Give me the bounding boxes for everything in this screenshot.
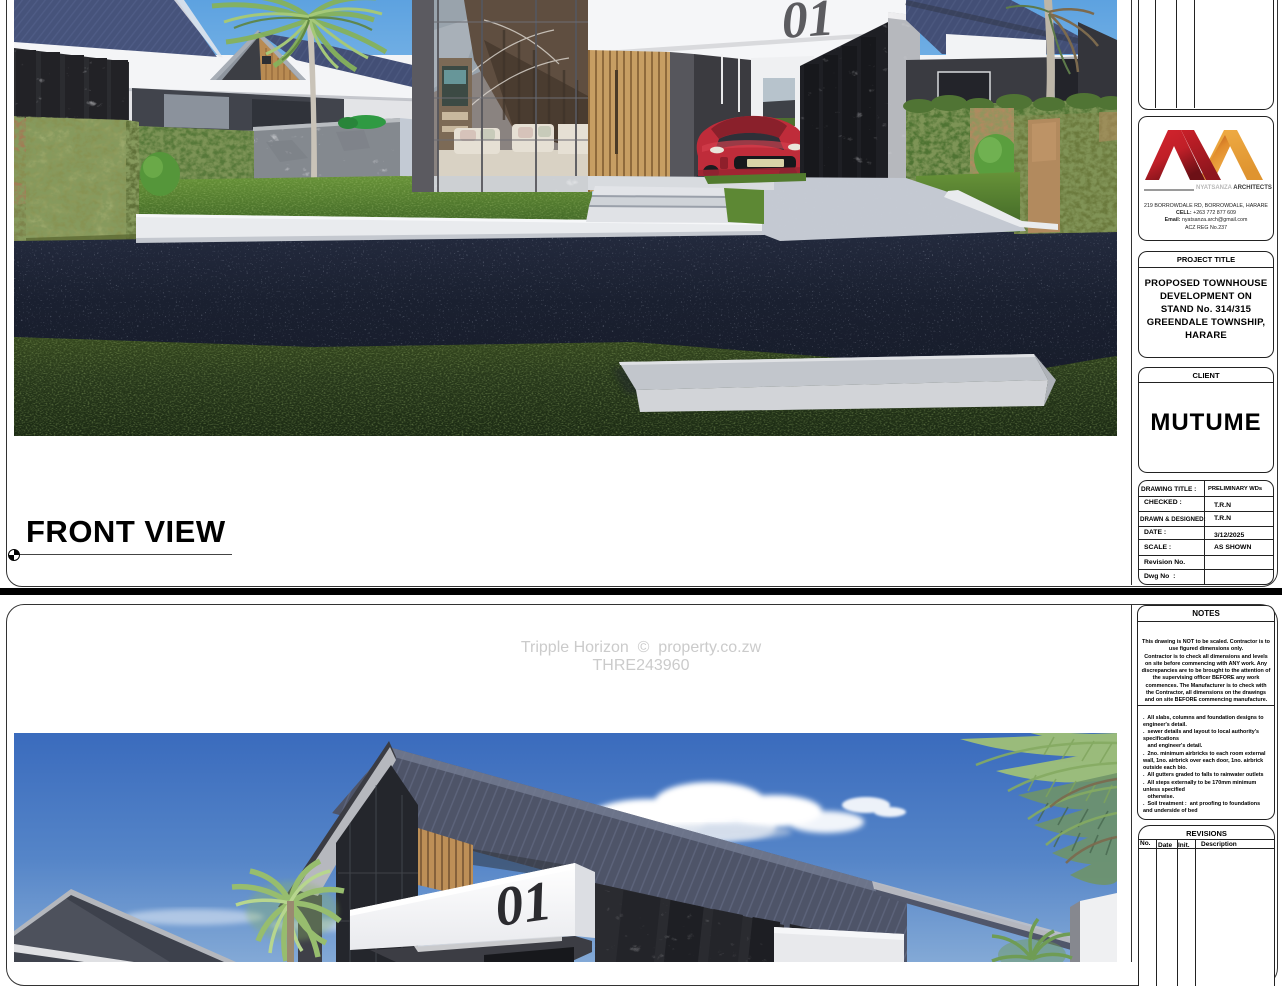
svg-text:01: 01 [491,870,555,939]
svg-text:01: 01 [780,0,836,50]
